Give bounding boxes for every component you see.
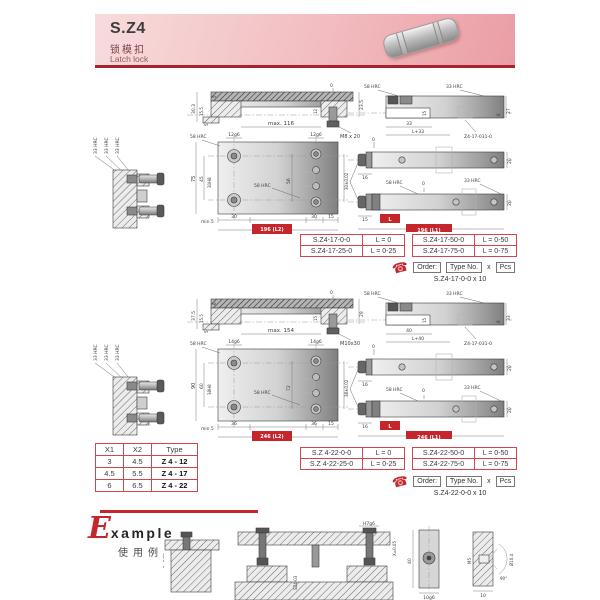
dim-label: 12g6 — [310, 132, 322, 138]
dim-label: 15 — [328, 214, 334, 220]
dim-label: max. 154 — [268, 328, 294, 334]
dim-label: 30 — [231, 214, 237, 220]
hrc-label: 33 HRC — [446, 291, 463, 297]
dim-label: 15.5 — [199, 107, 204, 116]
dim-label: 37.5 — [191, 311, 197, 321]
dim-label: 14g6 — [310, 339, 322, 345]
dim-label: 16 — [362, 175, 368, 181]
catalog-page: S.Z4 锁模扣 Latch lock 33 HRC 33 HRC 33 HRC — [0, 0, 600, 600]
example-geometry — [165, 526, 507, 600]
type-value: Z 4 - 17 — [152, 468, 198, 480]
type-value: Z 4 - 22 — [152, 480, 198, 492]
side-geometry — [113, 170, 164, 228]
dim-label: 10 — [480, 593, 486, 599]
hrc-label: 33 HRC — [464, 385, 481, 391]
pcs-label: Pcs — [496, 476, 516, 487]
length-range: L = 0 — [363, 235, 405, 246]
hrc-label: 33 HRC — [115, 137, 121, 154]
g2-side-view: 33 HRC 33 HRC 33 HRC — [83, 325, 168, 440]
dim-label: 0~0.05 — [163, 553, 165, 568]
part-no: S.Z4-17-0-0 — [301, 235, 363, 246]
hrc-label: 58 HRC — [254, 183, 271, 189]
angle-label: 90° — [500, 576, 507, 581]
dim-label: 27 — [506, 108, 512, 114]
x1-value: 4.5 — [96, 468, 124, 480]
example-divider — [100, 510, 258, 513]
g1-part-table-b: S.Z4-17-50-0L = 0-50 S.Z4-17-75-0L = 0-7… — [412, 234, 517, 257]
dim-label: 75 — [191, 176, 197, 182]
dim-label: 15 — [313, 315, 318, 321]
dim-label: 20 — [507, 200, 513, 206]
dim-label: 15 — [422, 110, 427, 116]
example-drawings: 0~0.05 H7g6 X=0.05 SZ4-03 40 10g6 M5 Ø10… — [163, 520, 523, 600]
g2-part-table-a: S.Z 4-22-0-0L = 0 S.Z 4-22-25-0L = 0-25 — [300, 447, 405, 470]
hrc-label: 33 HRC — [104, 344, 110, 361]
hrc-label: 58 HRC — [190, 341, 207, 347]
dim-label: 12 — [313, 108, 318, 114]
hrc-label: 33 HRC — [446, 84, 463, 90]
dim-label: 72 — [286, 385, 292, 391]
dim-label: 90 — [191, 383, 197, 389]
total-length-label: 196 (L1) — [417, 228, 440, 232]
dim-label: H7g6 — [363, 521, 375, 527]
dim-label: min.5 — [201, 219, 214, 225]
part-no: S.Z4-22-50-0 — [413, 448, 475, 459]
dim-label: 20 — [507, 365, 513, 371]
holder-geometry — [348, 297, 512, 342]
times-label: x — [487, 264, 491, 271]
dim-label: 15.5 — [199, 314, 204, 323]
order-label: Order: — [413, 476, 441, 487]
type-value: Z 4 - 12 — [152, 456, 198, 468]
plan-geometry — [196, 343, 348, 441]
pcs-label: Pcs — [496, 262, 516, 273]
holder-geometry — [348, 90, 512, 135]
g1-holder-view: 58 HRC 33 HRC 6 27 15 33 L+33 Z4-17-031-… — [346, 80, 514, 140]
phone-icon: ☎ — [391, 473, 410, 490]
example-initial: E — [88, 511, 111, 546]
g1-order-sample: S.Z4-17-0-0 x 10 — [408, 276, 512, 283]
order-label: Order: — [413, 262, 441, 273]
dim-label: 15 — [362, 217, 368, 223]
dim-label: 40 — [406, 328, 412, 334]
x2-value: 4.5 — [124, 456, 152, 468]
dim-label: 0 — [372, 344, 375, 350]
g1-order-row: ☎ Order: Type No. x Pcs — [392, 261, 515, 274]
total-length-label: 246 (L1) — [417, 435, 440, 439]
g2-holder-view: 58 HRC 33 HRC 8 33 15 40 L+40 Z4-17-031-… — [346, 287, 514, 347]
phone-icon: ☎ — [391, 259, 410, 276]
dim-label: 33 — [506, 315, 512, 321]
dim-label: 0 — [330, 290, 333, 296]
hrc-label: 58 HRC — [190, 134, 207, 140]
dim-label: 5 — [204, 123, 209, 126]
type-no-label: Type No. — [446, 262, 482, 273]
dim-label: 30H8 — [207, 177, 212, 188]
dim-label: max. 116 — [268, 121, 294, 127]
dim-label: 0 — [330, 83, 333, 89]
dim-label: 36 — [231, 421, 237, 427]
side-geometry — [113, 377, 164, 435]
total-length-label: 246 (L2) — [260, 434, 283, 440]
product-photo — [381, 16, 461, 60]
hrc-label: 33 HRC — [464, 178, 481, 184]
bars-geometry — [348, 142, 512, 232]
g2-latch-bars: 0 16 20 58 HRC 0 33 HRC 16 L 246 (L1) 20 — [344, 339, 514, 439]
dim-label: Ø10.4 — [509, 553, 514, 566]
x1-value: 6 — [96, 480, 124, 492]
dim-label: 38H8 — [207, 384, 212, 395]
part-no: S.Z 4-22-25-0 — [301, 459, 363, 470]
dim-label: 16 — [362, 424, 368, 430]
bars-geometry — [348, 349, 512, 439]
hrc-label: 58 HRC — [386, 387, 403, 393]
g2-plan-view: 14g6 14g6 58 HRC 58 HRC 90 60 38H8 72 38… — [188, 337, 353, 441]
part-no: S.Z4-22-75-0 — [413, 459, 475, 470]
col-header: X1 — [96, 444, 124, 456]
dim-label: min.5 — [201, 426, 214, 432]
dim-label: 36 — [311, 421, 317, 427]
dim-label: 45 — [199, 176, 205, 182]
g1-side-view: 33 HRC 33 HRC 33 HRC — [83, 118, 168, 233]
type-no-label: Type No. — [446, 476, 482, 487]
dim-label: 33 — [406, 121, 412, 127]
g1-part-table-a: S.Z4-17-0-0L = 0 S.Z4-17-25-0L = 0-25 — [300, 234, 405, 257]
part-no: S.Z4-17-75-0 — [413, 246, 475, 257]
product-header: S.Z4 锁模扣 Latch lock — [95, 14, 515, 68]
dim-label: 30.3 — [191, 104, 197, 114]
dim-label: 40 — [407, 558, 413, 564]
dim-label: 20 — [507, 407, 513, 413]
type-selection-table: X1 X2 Type 3 4.5 Z 4 - 12 4.5 5.5 Z 4 - … — [95, 443, 198, 492]
hrc-label: 33 HRC — [104, 137, 110, 154]
hrc-label: 33 HRC — [115, 344, 121, 361]
dim-label: 20 — [507, 158, 513, 164]
col-header: X2 — [124, 444, 152, 456]
dim-label: 15 — [422, 317, 427, 323]
hrc-label: 58 HRC — [364, 291, 381, 297]
dim-label: 0 — [372, 137, 375, 143]
dim-label: 56 — [286, 178, 292, 184]
x2-value: 6.5 — [124, 480, 152, 492]
x1-value: 3 — [96, 456, 124, 468]
hrc-label: 58 HRC — [364, 84, 381, 90]
g2-order-sample: S.Z4-22-0-0 x 10 — [408, 490, 512, 497]
length-range: L = 0-25 — [363, 459, 405, 470]
length-range: L = 0-75 — [475, 459, 517, 470]
dim-label: 60 — [199, 383, 205, 389]
dim-label: 0 — [422, 388, 425, 394]
dim-label: 12g6 — [228, 132, 240, 138]
hrc-label: 58 HRC — [386, 180, 403, 186]
dim-label: 10g6 — [423, 595, 435, 600]
dim-label: 30 — [311, 214, 317, 220]
dim-label: 0 — [422, 181, 425, 187]
length-range: L = 0-75 — [475, 246, 517, 257]
part-no-label: SZ4-03 — [293, 575, 298, 590]
dim-label: 16 — [362, 382, 368, 388]
example-heading: Example 使用例 — [88, 516, 174, 559]
g1-plan-view: 12g6 12g6 58 HRC 58 HRC 75 45 30H8 56 30… — [188, 130, 353, 234]
g2-order-row: ☎ Order: Type No. x Pcs — [392, 475, 515, 488]
g2-part-table-b: S.Z4-22-50-0L = 0-50 S.Z4-22-75-0L = 0-7… — [412, 447, 517, 470]
length-range: L = 0 — [363, 448, 405, 459]
x2-value: 5.5 — [124, 468, 152, 480]
dim-label: X=0.05 — [392, 541, 397, 556]
col-header: Type — [152, 444, 198, 456]
length-range: L = 0-50 — [475, 235, 517, 246]
length-range: L = 0-25 — [363, 246, 405, 257]
part-no: S.Z 4-22-0-0 — [301, 448, 363, 459]
hrc-label: 33 HRC — [93, 137, 99, 154]
plan-geometry — [196, 136, 348, 234]
dim-label: 15 — [328, 421, 334, 427]
part-no: S.Z4-17-50-0 — [413, 235, 475, 246]
length-range: L = 0-50 — [475, 448, 517, 459]
hrc-label: 58 HRC — [254, 390, 271, 396]
page-title: S.Z4 — [110, 20, 146, 38]
dim-label: 5 — [204, 330, 209, 333]
g1-latch-bars: 0 16 20 58 HRC 0 33 HRC 15 L 196 (L1) 20 — [344, 132, 514, 232]
product-name-en: Latch lock — [110, 54, 148, 64]
total-length-label: 196 (L2) — [260, 227, 283, 233]
hrc-label: 33 HRC — [93, 344, 99, 361]
dim-label: 14g6 — [228, 339, 240, 345]
times-label: x — [487, 478, 491, 485]
thread-label: M5 — [467, 558, 472, 564]
part-no: S.Z4-17-25-0 — [301, 246, 363, 257]
